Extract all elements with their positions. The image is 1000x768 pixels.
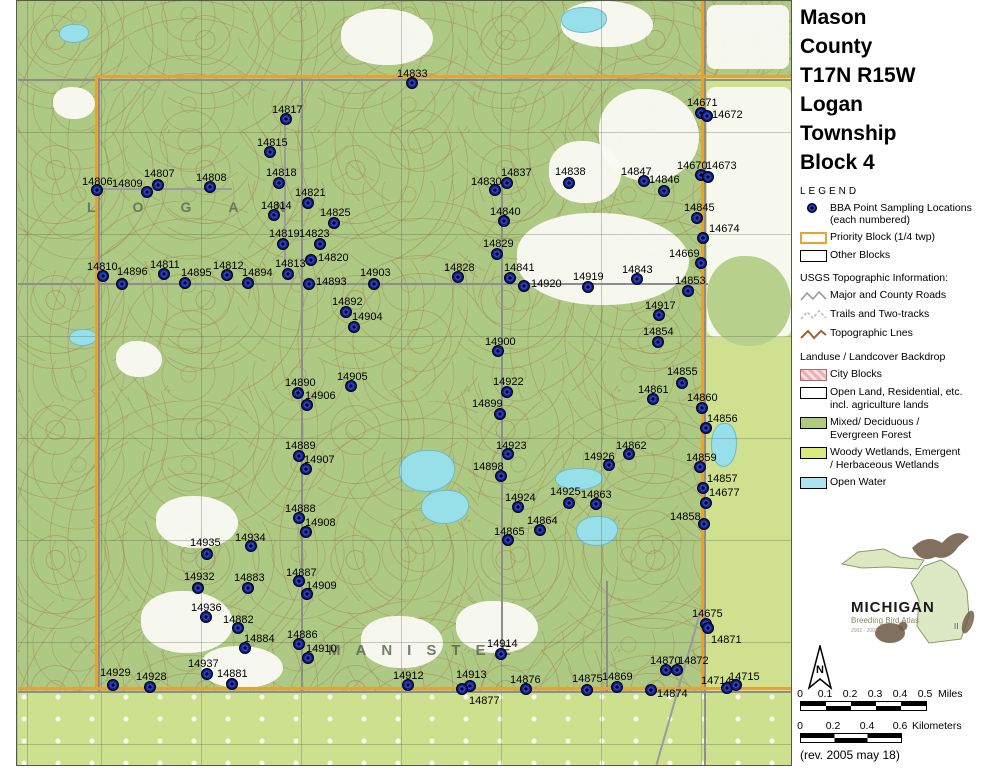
sampling-point-label: 14912 <box>393 671 424 682</box>
logo-subtitle: Breeding Bird Atlas <box>851 616 919 625</box>
legend-label: Topographic Lnes <box>830 327 913 339</box>
legend-label: Mixed/ Deciduous / <box>830 416 919 429</box>
sampling-point-dot-14807 <box>152 179 164 191</box>
legend-label: Priority Block (1/4 twp) <box>830 231 935 243</box>
sampling-point-label: 14886 <box>287 630 318 641</box>
legend-item-city-blocks: City Blocks <box>800 368 998 381</box>
sampling-point-label: 14894 <box>242 268 273 279</box>
sampling-point-label: 14929 <box>100 668 131 679</box>
miles-scale-bar: 00.10.20.30.40.5 Miles <box>798 688 998 718</box>
michigan-bba-logo: MICHIGAN Breeding Bird Atlas 2002 - 2007… <box>828 530 1000 665</box>
sampling-point-label: 14821 <box>295 188 326 199</box>
logo-numeral: II <box>954 622 958 631</box>
sampling-point-label: 14818 <box>266 168 297 179</box>
hawk-icon <box>912 533 969 559</box>
page-title-line: T17N R15W <box>800 61 998 90</box>
sampling-point-label: 14887 <box>286 568 317 579</box>
sampling-point-label: 14865 <box>494 527 525 538</box>
sampling-point-dot-14893 <box>303 278 315 290</box>
km-unit-label: Kilometers <box>912 720 962 732</box>
sampling-point-label: 14928 <box>136 672 167 683</box>
contour-zigzag-icon <box>800 328 827 341</box>
sampling-point-label: 14919 <box>573 272 604 283</box>
north-label: N <box>816 664 824 676</box>
sampling-point-label: 14817 <box>272 105 303 116</box>
sampling-point-label: 14837 <box>501 168 532 179</box>
scale-tick-label: 0.2 <box>843 688 858 700</box>
legend-item-other-blocks: Other Blocks <box>800 249 998 262</box>
sampling-point-label: 14882 <box>223 615 254 626</box>
legend-label: Woody Wetlands, Emergent <box>830 446 960 459</box>
sampling-point-label: 14922 <box>493 377 524 388</box>
page-title-line: Mason <box>800 3 998 32</box>
logo-title: MICHIGAN <box>851 599 935 616</box>
sampling-point-label: 14864 <box>527 516 558 527</box>
sampling-point-dot-14875 <box>581 684 593 696</box>
sampling-point-label: 14833 <box>397 69 428 80</box>
city-blocks-swatch <box>800 369 827 381</box>
scale-tick-label: 0 <box>797 720 803 732</box>
sampling-point-label: 14830 <box>471 177 502 188</box>
sampling-point-label: 14671 <box>687 98 718 109</box>
sampling-point-label: 14937 <box>188 659 219 670</box>
revision-note: (rev. 2005 may 18) <box>800 748 900 762</box>
sampling-point-label: 14935 <box>190 538 221 549</box>
sampling-point-label: 14715 <box>729 672 760 683</box>
legend-label: BBA Point Sampling Locations <box>830 202 972 214</box>
sampling-point-label: 14819 <box>269 229 300 240</box>
sampling-point-label: 14858 <box>670 512 701 523</box>
legend-item-priority-block: Priority Block (1/4 twp) <box>800 231 998 244</box>
scale-tick-label: 0.1 <box>818 688 833 700</box>
sampling-point-label: 14909 <box>306 581 337 592</box>
sampling-point-label: 14899 <box>472 399 503 410</box>
legend-item-forest: Mixed/ Deciduous /Evergreen Forest <box>800 416 998 441</box>
sampling-point-label: 14823 <box>299 229 330 240</box>
sampling-point-label: 14883 <box>234 573 265 584</box>
sampling-point-label: 14841 <box>504 263 535 274</box>
sampling-point-label: 14674 <box>709 224 740 235</box>
sampling-point-icon <box>807 203 817 213</box>
miles-unit-label: Miles <box>938 688 963 700</box>
sampling-point-dot-14929 <box>107 679 119 691</box>
sampling-point-dot-14935 <box>201 548 213 560</box>
sampling-point-label: 14923 <box>496 441 527 452</box>
priority-block-border-top <box>98 75 791 78</box>
legend-item-open-water: Open Water <box>800 476 998 489</box>
other-blocks-swatch <box>800 250 827 262</box>
sampling-point-label: 14869 <box>602 672 633 683</box>
priority-block-swatch <box>800 232 827 244</box>
sampling-point-label: 14860 <box>687 393 718 404</box>
sampling-point-label: 14854 <box>643 327 674 338</box>
wetlands-swatch <box>800 447 827 459</box>
legend-heading: LEGEND <box>800 186 998 197</box>
sampling-point-label: 14809 <box>112 179 143 190</box>
scale-tick-label: 0.3 <box>868 688 883 700</box>
sampling-point-label: 14936 <box>191 603 222 614</box>
legend-item-major-roads: Major and County Roads <box>800 289 998 303</box>
legend-label: Open Land, Residential, etc. <box>830 386 963 399</box>
sampling-point-dot-14877 <box>456 683 468 695</box>
sampling-point-label: 14847 <box>621 167 652 178</box>
sampling-point-label: 14838 <box>555 167 586 178</box>
sampling-point-dot-14874 <box>645 684 657 696</box>
legend-item-wetlands: Woody Wetlands, Emergent/ Herbaceous Wet… <box>800 446 998 471</box>
sampling-point-label: 14925 <box>550 487 581 498</box>
sampling-point-label: 14808 <box>196 173 227 184</box>
legend-item-open-land: Open Land, Residential, etc.incl. agricu… <box>800 386 998 411</box>
sampling-point-label: 14857 <box>707 474 738 485</box>
sampling-point-label: 14884 <box>244 634 275 645</box>
sampling-point-label: 14813 <box>275 259 306 270</box>
km-bar <box>800 733 902 743</box>
sampling-point-label: 14914 <box>487 639 518 650</box>
legend-label: Evergreen Forest <box>830 429 919 442</box>
sampling-point-label: 14906 <box>305 391 336 402</box>
sampling-point-label: 14892 <box>332 297 363 308</box>
sampling-point-label: 14871 <box>711 635 742 646</box>
sampling-point-label: 14810 <box>87 262 118 273</box>
sampling-point-label: 14862 <box>616 441 647 452</box>
topo-map: LOGAN MANISTEE 1480614809148071480814817… <box>16 0 792 766</box>
scale-tick-label: 0.2 <box>826 720 841 732</box>
legend-label: Major and County Roads <box>830 289 946 301</box>
legend-label: incl. agriculture lands <box>830 399 963 412</box>
sampling-point-label: 14872 <box>678 656 709 667</box>
sampling-point-label: 14714 <box>701 676 732 687</box>
scale-tick-label: 0.6 <box>893 720 908 732</box>
sampling-point-dot-14809 <box>141 186 153 198</box>
scale-tick-label: 0.5 <box>918 688 933 700</box>
sampling-point-label: 14903 <box>360 268 391 279</box>
sampling-point-dot-14896 <box>116 278 128 290</box>
sampling-point-label: 14920 <box>531 279 562 290</box>
sampling-point-label: 14881 <box>217 669 248 680</box>
open-land-swatch <box>800 387 827 399</box>
sampling-point-label: 14673 <box>706 161 737 172</box>
sampling-point-dot-14820 <box>305 254 317 266</box>
landuse-heading: Landuse / Landcover Backdrop <box>800 351 998 363</box>
sampling-point-label: 14829 <box>483 239 514 250</box>
km-scale-bar: 00.20.40.6 Kilometers <box>798 720 998 750</box>
miles-bar <box>800 701 927 711</box>
road <box>98 76 100 691</box>
sampling-point-label: 14820 <box>318 253 349 264</box>
sampling-point-label: 14846 <box>649 175 680 186</box>
priority-block-border-left <box>95 75 98 689</box>
sampling-point-label: 14926 <box>584 452 615 463</box>
sampling-point-label: 14917 <box>645 301 676 312</box>
sampling-point-label: 14825 <box>320 208 351 219</box>
page-title-line: County <box>800 32 998 61</box>
scale-tick-label: 0.4 <box>893 688 908 700</box>
sampling-point-dot-14838 <box>563 177 575 189</box>
sampling-point-label: 14908 <box>305 518 336 529</box>
logo-years: 2002 - 2007 <box>851 628 878 634</box>
sampling-point-label: 14932 <box>184 572 215 583</box>
legend-label: Trails and Two-tracks <box>830 308 929 320</box>
scale-tick-label: 0 <box>797 688 803 700</box>
sampling-point-dot-14903 <box>368 278 380 290</box>
sampling-point-label: 14853 <box>675 276 706 287</box>
sampling-point-label: 14828 <box>444 263 475 274</box>
sampling-point-label: 14893 <box>316 277 347 288</box>
sampling-point-label: 14812 <box>213 261 244 272</box>
sampling-point-label: 14888 <box>285 504 316 515</box>
sampling-point-label: 14900 <box>485 337 516 348</box>
sampling-point-label: 14843 <box>622 265 653 276</box>
page-title-line: Block 4 <box>800 148 998 177</box>
north-arrow: N <box>806 645 834 691</box>
sampling-point-label: 14913 <box>456 670 487 681</box>
sampling-point-label: 14861 <box>638 385 669 396</box>
sampling-point-label: 14907 <box>304 455 335 466</box>
legend-item-topo-lines: Topographic Lnes <box>800 327 998 341</box>
sampling-point-label: 14845 <box>684 203 715 214</box>
legend-label: / Herbaceous Wetlands <box>830 459 960 472</box>
sampling-point-label: 14814 <box>261 201 292 212</box>
sampling-point-label: 14874 <box>657 689 688 700</box>
forest-swatch <box>800 417 827 429</box>
sampling-point-label: 14875 <box>572 674 603 685</box>
sampling-point-label: 14807 <box>144 169 175 180</box>
legend-item-bba-points: BBA Point Sampling Locations (each numbe… <box>800 202 998 226</box>
legend-label: (each numbered) <box>830 214 972 226</box>
sampling-point-dot-14920 <box>518 280 530 292</box>
sampling-point-dot-14925 <box>563 497 575 509</box>
legend-label: Other Blocks <box>830 249 890 261</box>
sampling-point-label: 14890 <box>285 378 316 389</box>
sampling-point-label: 14669 <box>669 249 700 260</box>
page-title-line: Logan <box>800 90 998 119</box>
sampling-point-label: 14855 <box>667 367 698 378</box>
sampling-point-label: 14898 <box>473 462 504 473</box>
sampling-point-label: 14815 <box>257 138 288 149</box>
sampling-point-label: 14924 <box>505 493 536 504</box>
sampling-point-dot-14846 <box>658 185 670 197</box>
sampling-point-label: 14904 <box>352 312 383 323</box>
road-zigzag-icon <box>800 290 827 303</box>
sampling-point-label: 14877 <box>469 696 500 707</box>
scale-tick-label: 0.4 <box>860 720 875 732</box>
sampling-point-label: 14811 <box>150 260 180 271</box>
sampling-point-label: 14889 <box>285 441 316 452</box>
sampling-point-label: 14910 <box>306 644 337 655</box>
sampling-point-label: 14806 <box>82 177 113 188</box>
michigan-up-shape <box>842 549 924 569</box>
sampling-point-dot-14871 <box>702 622 714 634</box>
sampling-point-dot-14673 <box>702 171 714 183</box>
sampling-point-dot-14932 <box>192 582 204 594</box>
sampling-point-dot-14855 <box>676 377 688 389</box>
sampling-point-label: 14863 <box>581 490 612 501</box>
page-title-line: Township <box>800 119 998 148</box>
open-water-swatch <box>800 477 827 489</box>
sampling-point-label: 14677 <box>709 488 740 499</box>
sampling-point-label: 14670 <box>677 161 708 172</box>
sampling-point-label: 14856 <box>707 414 738 425</box>
sampling-point-dot-14674 <box>697 232 709 244</box>
usgs-heading: USGS Topographic Information: <box>800 272 998 284</box>
sampling-point-label: 14840 <box>490 207 521 218</box>
sampling-point-label: 14895 <box>181 268 212 279</box>
sampling-point-label: 14876 <box>510 675 541 686</box>
sampling-point-label: 14672 <box>712 110 743 121</box>
sampling-point-label: 14905 <box>337 372 368 383</box>
sampling-point-label: 14859 <box>686 453 717 464</box>
trail-zigzag-icon <box>800 309 827 322</box>
sampling-point-label: 14675 <box>692 609 723 620</box>
legend-label: Open Water <box>830 476 886 489</box>
legend-label: City Blocks <box>830 368 882 381</box>
legend-item-trails: Trails and Two-tracks <box>800 308 998 322</box>
sampling-point-label: 14934 <box>235 533 266 544</box>
sampling-point-label: 14896 <box>117 267 148 278</box>
bba-map-sheet: LOGAN MANISTEE 1480614809148071480814817… <box>0 0 1000 768</box>
